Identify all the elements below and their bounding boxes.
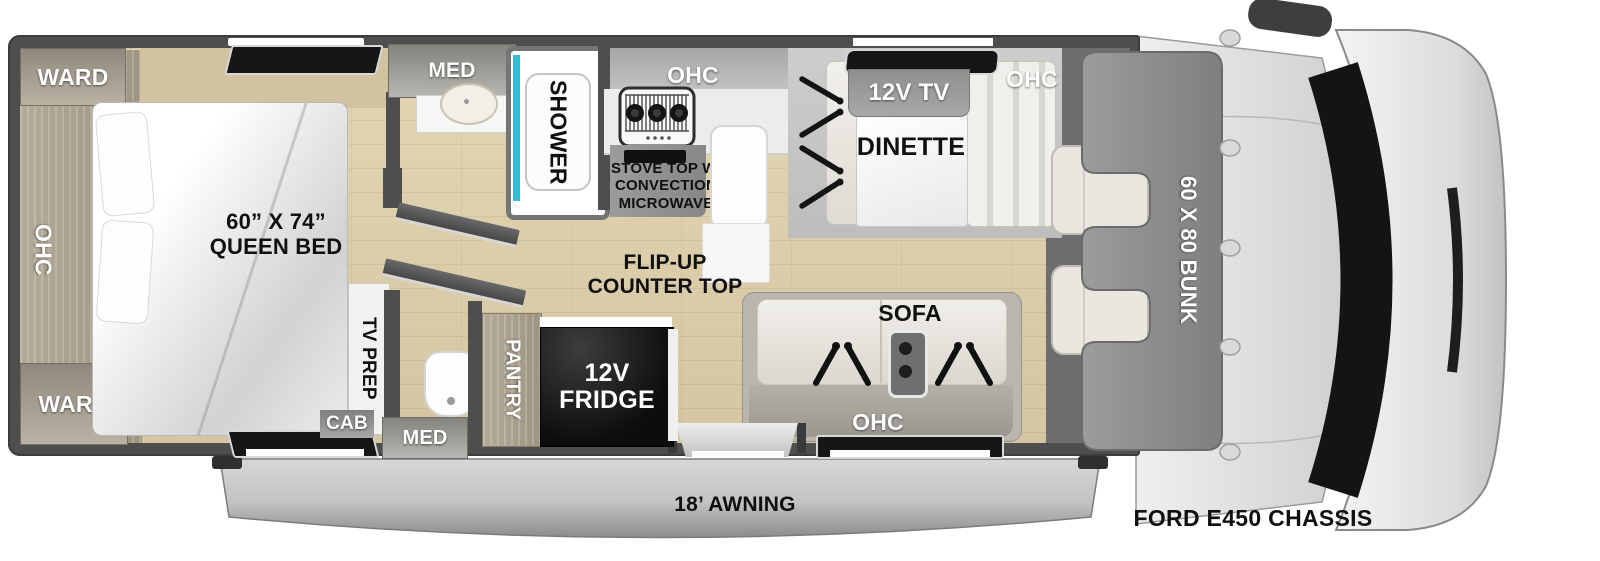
- awning-label: 18’ AWNING: [620, 492, 850, 518]
- rv-floorplan: WARD WARD OHC 60” X 74” QUEEN BED TV PRE…: [0, 0, 1600, 561]
- bunk-label: 60 X 80 BUNK: [1166, 162, 1210, 338]
- bunk-and-seats: [0, 0, 1600, 561]
- chassis-label: FORD E450 CHASSIS: [1128, 505, 1378, 531]
